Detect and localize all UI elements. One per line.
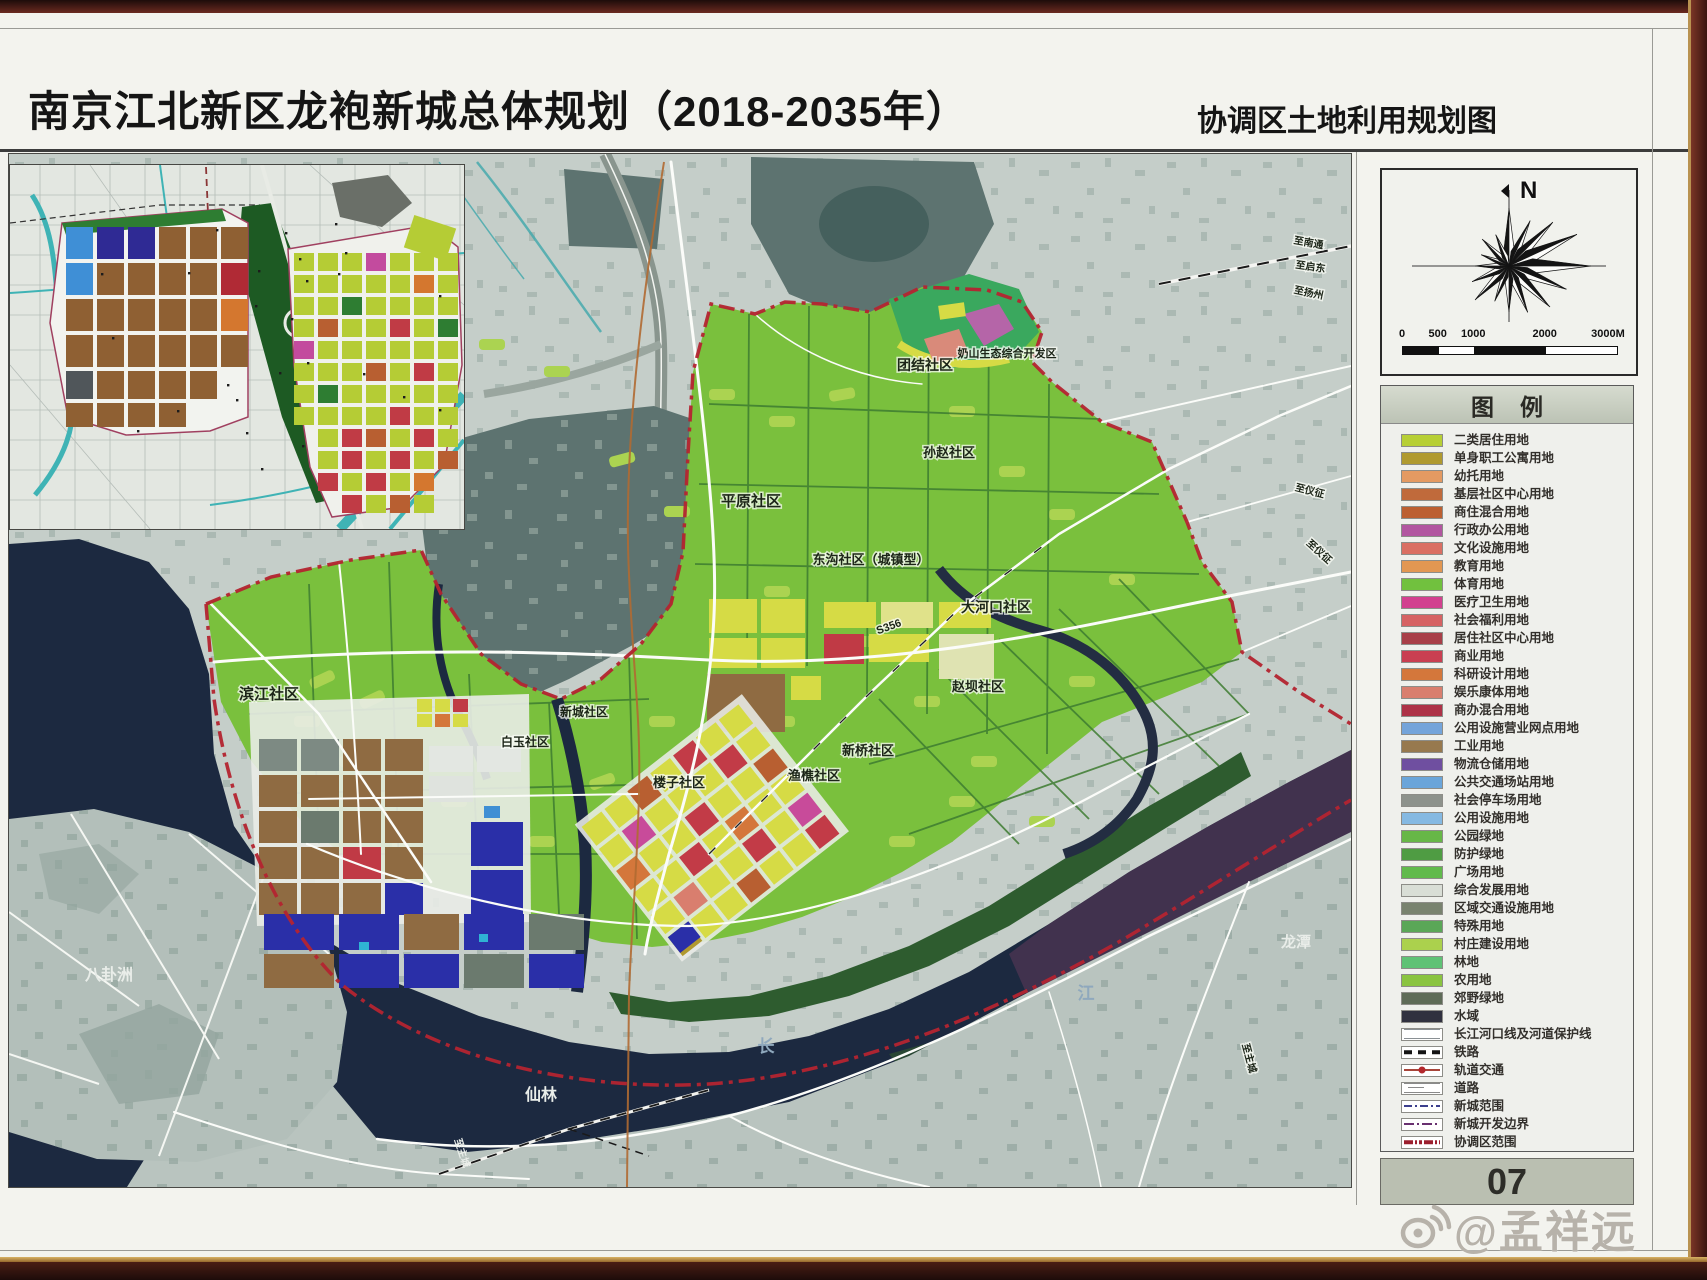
column-divider-rule <box>1356 152 1357 1205</box>
legend-color-chip <box>1401 992 1443 1005</box>
legend-color-chip <box>1401 560 1443 573</box>
legend-color-chip <box>1401 434 1443 447</box>
scale-ticks: 0500100020003000M <box>1402 328 1616 340</box>
map-label: 白玉社区 <box>501 734 549 749</box>
legend-item-label: 林地 <box>1454 956 1479 969</box>
legend-item-label: 幼托用地 <box>1454 470 1504 483</box>
legend-item: 商业用地 <box>1401 647 1633 665</box>
legend-color-chip <box>1401 920 1443 933</box>
legend-item-label: 长江河口线及河道保护线 <box>1454 1028 1592 1041</box>
legend-item: 区域交通设施用地 <box>1401 899 1633 917</box>
legend-color-chip <box>1401 1136 1443 1149</box>
legend-item-label: 工业用地 <box>1454 740 1504 753</box>
scale-tick: 2000 <box>1532 328 1556 340</box>
frame-gold-trim-right <box>1688 0 1691 1280</box>
map-label: 滨江社区 <box>239 685 299 703</box>
legend-item-label: 单身职工公寓用地 <box>1454 452 1554 465</box>
map-label: 八卦洲 <box>84 965 133 984</box>
legend-item-label: 娱乐康体用地 <box>1454 686 1529 699</box>
legend-item-label: 综合发展用地 <box>1454 884 1529 897</box>
legend-color-chip <box>1401 614 1443 627</box>
legend-item-label: 商住混合用地 <box>1454 506 1529 519</box>
scale-tick: 500 <box>1429 328 1447 340</box>
scale-segment <box>1439 347 1475 354</box>
legend-item-label: 村庄建设用地 <box>1454 938 1529 951</box>
legend-item-label: 区域交通设施用地 <box>1454 902 1554 915</box>
legend-color-chip <box>1401 668 1443 681</box>
legend-item-label: 科研设计用地 <box>1454 668 1529 681</box>
legend-item: 水域 <box>1401 1007 1633 1025</box>
legend-item-label: 农用地 <box>1454 974 1492 987</box>
sheet-title: 协调区土地利用规划图 <box>1197 96 1497 140</box>
map-label: 奶山生态综合开发区 <box>958 346 1057 360</box>
legend-item: 新城开发边界 <box>1401 1115 1633 1133</box>
legend-item: 综合发展用地 <box>1401 881 1633 899</box>
legend-item: 协调区范围 <box>1401 1133 1633 1151</box>
legend-item: 广场用地 <box>1401 863 1633 881</box>
legend-item: 公用设施营业网点用地 <box>1401 719 1633 737</box>
legend-item-label: 郊野绿地 <box>1454 992 1504 1005</box>
legend-item: 社会福利用地 <box>1401 611 1633 629</box>
legend-color-chip <box>1401 632 1443 645</box>
watermark-text: @孟祥远 <box>1454 1196 1637 1260</box>
inset-map <box>9 164 465 530</box>
legend-item: 二类居住用地 <box>1401 431 1633 449</box>
picture-frame-right <box>1691 0 1707 1280</box>
legend-item: 幼托用地 <box>1401 467 1633 485</box>
legend-color-chip <box>1401 1010 1443 1023</box>
legend-color-chip <box>1401 812 1443 825</box>
legend-item: 工业用地 <box>1401 737 1633 755</box>
north-label: N <box>1520 177 1537 204</box>
map-label: 大河口社区 <box>961 599 1031 615</box>
legend-item-label: 商办混合用地 <box>1454 704 1529 717</box>
legend-color-chip <box>1401 848 1443 861</box>
legend-color-chip <box>1401 488 1443 501</box>
legend-item: 商办混合用地 <box>1401 701 1633 719</box>
legend-item-label: 公园绿地 <box>1454 830 1504 843</box>
map-label: 渔樵社区 <box>788 768 840 783</box>
legend-color-chip <box>1401 1118 1443 1131</box>
legend-color-chip <box>1401 776 1443 789</box>
legend-item-label: 商业用地 <box>1454 650 1504 663</box>
legend-item: 基层社区中心用地 <box>1401 485 1633 503</box>
map-label: 新桥社区 <box>842 743 894 758</box>
legend-color-chip <box>1401 902 1443 915</box>
legend-item: 居住社区中心用地 <box>1401 629 1633 647</box>
legend-item-label: 公用设施营业网点用地 <box>1454 722 1579 735</box>
legend-item: 村庄建设用地 <box>1401 935 1633 953</box>
map-label: 孙赵社区 <box>923 445 975 460</box>
legend-color-chip <box>1401 866 1443 879</box>
legend-item-label: 文化设施用地 <box>1454 542 1529 555</box>
legend-color-chip <box>1401 506 1443 519</box>
map-label: 龙潭 <box>1280 933 1311 951</box>
legend-item: 长江河口线及河道保护线 <box>1401 1025 1633 1043</box>
map-label: 长 <box>758 1036 776 1056</box>
legend-item: 单身职工公寓用地 <box>1401 449 1633 467</box>
legend-item-label: 铁路 <box>1454 1046 1479 1059</box>
legend-color-chip <box>1401 974 1443 987</box>
map-label: 新城社区 <box>560 704 608 719</box>
legend-item: 体育用地 <box>1401 575 1633 593</box>
legend-color-chip <box>1401 650 1443 663</box>
legend-item-label: 体育用地 <box>1454 578 1504 591</box>
legend-item: 教育用地 <box>1401 557 1633 575</box>
legend-item: 郊野绿地 <box>1401 989 1633 1007</box>
legend-item: 公用设施用地 <box>1401 809 1633 827</box>
legend-color-chip <box>1401 722 1443 735</box>
legend-color-chip <box>1401 686 1443 699</box>
legend-item-label: 居住社区中心用地 <box>1454 632 1554 645</box>
weibo-icon <box>1396 1203 1454 1253</box>
legend-color-chip <box>1401 884 1443 897</box>
north-arrow-panel: N 0500100020003000M <box>1380 168 1638 376</box>
planning-map: 滨江社区平原社区东沟社区（城镇型）团结社区奶山生态综合开发区孙赵社区大河口社区赵… <box>8 153 1352 1188</box>
legend-item: 新城范围 <box>1401 1097 1633 1115</box>
legend-item: 林地 <box>1401 953 1633 971</box>
scale-segment <box>1474 347 1545 354</box>
legend-item-label: 轨道交通 <box>1454 1064 1504 1077</box>
legend-item: 特殊用地 <box>1401 917 1633 935</box>
legend-item-label: 公用设施用地 <box>1454 812 1529 825</box>
legend-color-chip <box>1401 956 1443 969</box>
poster-top-rule <box>0 28 1692 29</box>
scale-tick: 1000 <box>1461 328 1485 340</box>
map-label: 赵坝社区 <box>951 679 1004 694</box>
legend-item: 行政办公用地 <box>1401 521 1633 539</box>
legend-item-label: 行政办公用地 <box>1454 524 1529 537</box>
legend-title: 图例 <box>1381 386 1633 424</box>
legend-color-chip <box>1401 470 1443 483</box>
picture-frame-top <box>0 0 1707 13</box>
legend-color-chip <box>1401 794 1443 807</box>
legend-color-chip <box>1401 1064 1443 1077</box>
legend-item-label: 医疗卫生用地 <box>1454 596 1529 609</box>
legend-item-label: 公共交通场站用地 <box>1454 776 1554 789</box>
legend-color-chip <box>1401 830 1443 843</box>
legend-list: 二类居住用地 单身职工公寓用地 幼托用地 基层社区中心用地 商住混合用地 行政办… <box>1381 424 1633 1151</box>
legend-item: 公共交通场站用地 <box>1401 773 1633 791</box>
legend-item: 道路 <box>1401 1079 1633 1097</box>
legend-item-label: 二类居住用地 <box>1454 434 1529 447</box>
legend-color-chip <box>1401 542 1443 555</box>
legend-item: 医疗卫生用地 <box>1401 593 1633 611</box>
legend-item-label: 水域 <box>1454 1010 1479 1023</box>
legend-color-chip <box>1401 938 1443 951</box>
legend-item: 文化设施用地 <box>1401 539 1633 557</box>
map-label: 江 <box>1078 984 1095 1003</box>
legend-color-chip <box>1401 1100 1443 1113</box>
legend-item-label: 教育用地 <box>1454 560 1504 573</box>
map-label: 团结社区 <box>897 357 953 373</box>
legend-item-label: 物流仓储用地 <box>1454 758 1529 771</box>
legend-color-chip <box>1401 758 1443 771</box>
legend-item: 轨道交通 <box>1401 1061 1633 1079</box>
map-label: 仙林 <box>525 1085 557 1104</box>
wind-rose: N <box>1382 170 1636 326</box>
legend-item-label: 协调区范围 <box>1454 1136 1517 1149</box>
legend-panel: 图例 二类居住用地 单身职工公寓用地 幼托用地 基层社区中心用地 商住混合用地 … <box>1380 385 1634 1152</box>
legend-item-label: 新城范围 <box>1454 1100 1504 1113</box>
legend-color-chip <box>1401 1082 1443 1095</box>
picture-frame-bottom <box>0 1262 1707 1280</box>
legend-item: 娱乐康体用地 <box>1401 683 1633 701</box>
legend-color-chip <box>1401 596 1443 609</box>
legend-color-chip <box>1401 452 1443 465</box>
legend-color-chip <box>1401 740 1443 753</box>
legend-item-label: 社会停车场用地 <box>1454 794 1542 807</box>
scale-segment <box>1546 347 1617 354</box>
title-divider-rule <box>0 149 1692 152</box>
legend-color-chip <box>1401 524 1443 537</box>
legend-item: 科研设计用地 <box>1401 665 1633 683</box>
scale-bar <box>1402 346 1618 355</box>
legend-item: 防护绿地 <box>1401 845 1633 863</box>
legend-item: 商住混合用地 <box>1401 503 1633 521</box>
legend-item-label: 基层社区中心用地 <box>1454 488 1554 501</box>
legend-color-chip <box>1401 1046 1443 1059</box>
legend-item: 社会停车场用地 <box>1401 791 1633 809</box>
map-label: 东沟社区（城镇型） <box>812 552 929 567</box>
legend-item: 物流仓储用地 <box>1401 755 1633 773</box>
legend-color-chip <box>1401 704 1443 717</box>
scale-segment <box>1403 347 1439 354</box>
legend-item-label: 新城开发边界 <box>1454 1118 1529 1131</box>
map-title: 南京江北新区龙袍新城总体规划（2018-2035年） <box>28 78 969 139</box>
legend-item: 铁路 <box>1401 1043 1633 1061</box>
legend-item-label: 道路 <box>1454 1082 1479 1095</box>
legend-item-label: 特殊用地 <box>1454 920 1504 933</box>
map-label: 楼子社区 <box>653 775 705 790</box>
scale-tick: 3000M <box>1591 328 1625 340</box>
legend-item-label: 防护绿地 <box>1454 848 1504 861</box>
legend-item: 公园绿地 <box>1401 827 1633 845</box>
legend-item: 农用地 <box>1401 971 1633 989</box>
scale-tick: 0 <box>1399 328 1405 340</box>
watermark: @孟祥远 <box>1396 1196 1637 1260</box>
legend-color-chip <box>1401 1028 1443 1041</box>
poster-right-rule <box>1652 28 1653 1250</box>
legend-item-label: 广场用地 <box>1454 866 1504 879</box>
legend-color-chip <box>1401 578 1443 591</box>
legend-item-label: 社会福利用地 <box>1454 614 1529 627</box>
map-label: 平原社区 <box>721 492 781 510</box>
